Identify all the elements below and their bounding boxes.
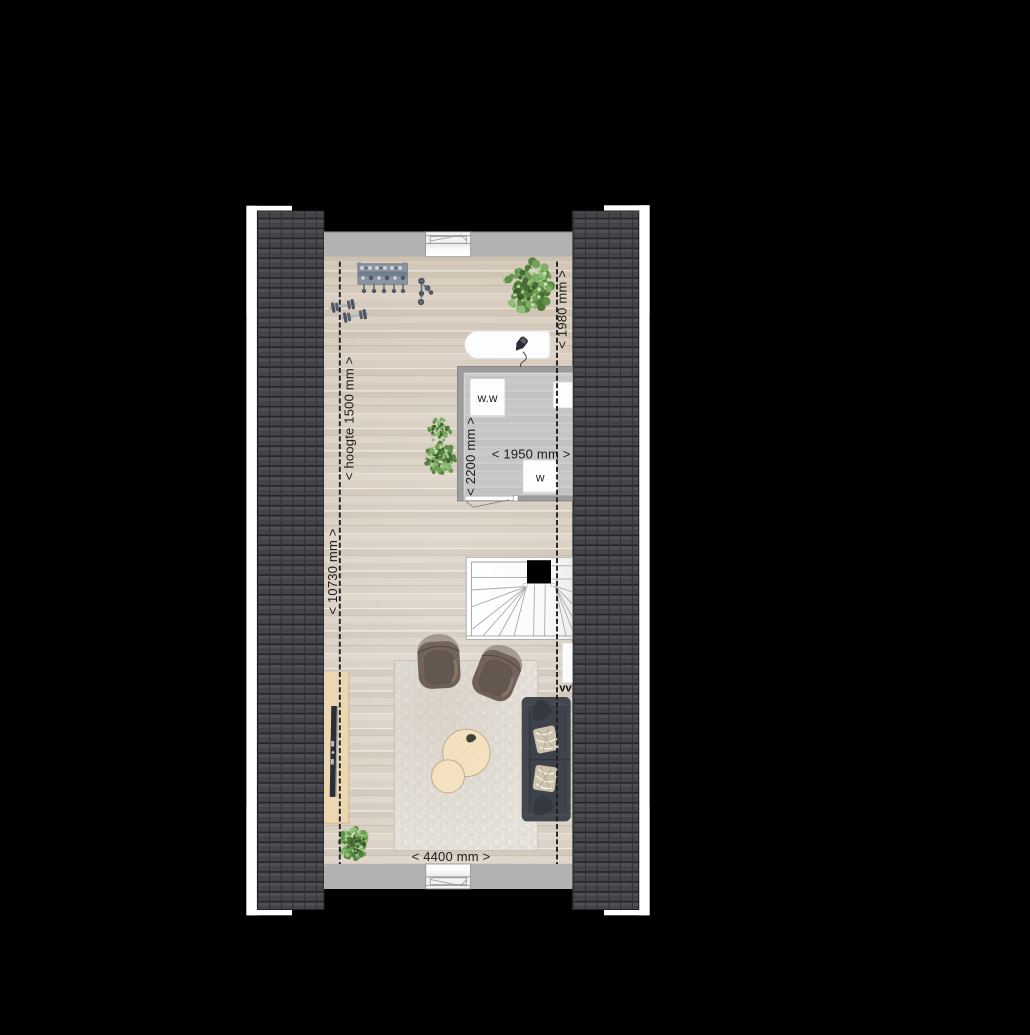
svg-text:< hoogte 1500 mm >: < hoogte 1500 mm > — [342, 357, 357, 481]
svg-text:< 1950 mm >: < 1950 mm > — [492, 446, 571, 461]
svg-text:< 10730 mm >: < 10730 mm > — [325, 528, 340, 614]
svg-text:< 2200 mm >: < 2200 mm > — [463, 417, 478, 496]
svg-text:w: w — [535, 471, 545, 485]
svg-text:w.w: w.w — [476, 391, 497, 405]
svg-text:vv: vv — [559, 683, 572, 695]
svg-text:< 4400 mm >: < 4400 mm > — [412, 849, 491, 864]
svg-text:< 1980 mm >: < 1980 mm > — [555, 270, 570, 349]
